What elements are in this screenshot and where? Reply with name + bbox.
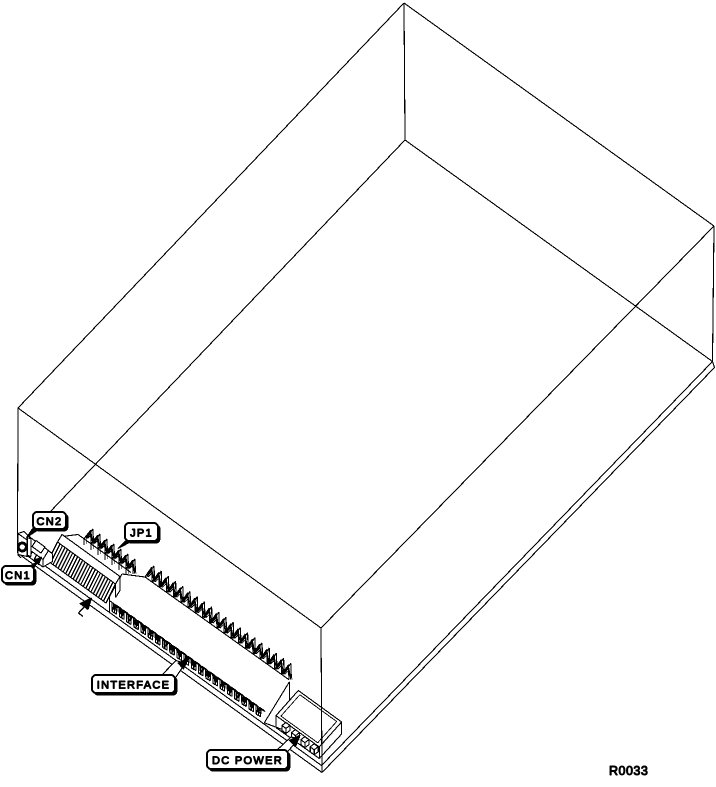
svg-text:INTERFACE: INTERFACE — [97, 679, 170, 691]
svg-text:CN2: CN2 — [37, 516, 63, 528]
svg-text:R0033: R0033 — [609, 764, 648, 778]
svg-text:JP1: JP1 — [130, 527, 153, 539]
svg-text:CN1: CN1 — [5, 570, 31, 582]
svg-text:DC POWER: DC POWER — [212, 755, 283, 767]
